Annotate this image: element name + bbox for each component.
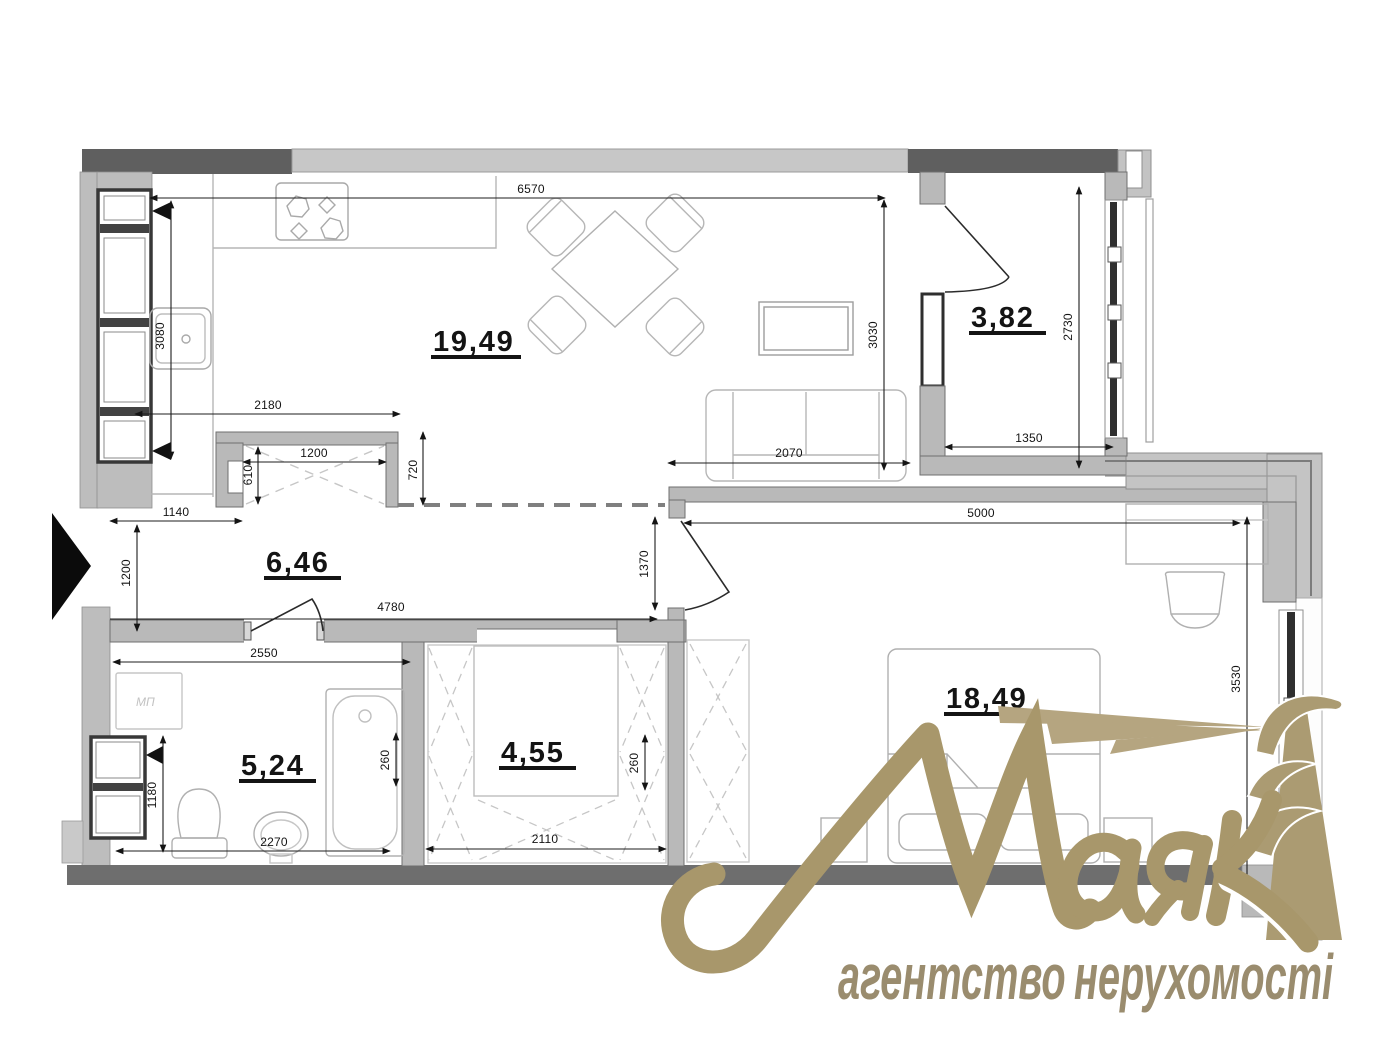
svg-text:1200: 1200: [119, 559, 133, 587]
svg-text:2730: 2730: [1061, 313, 1075, 341]
svg-text:4780: 4780: [377, 600, 405, 614]
svg-text:нерухомості: нерухомості: [1074, 943, 1334, 1014]
svg-text:1200: 1200: [300, 446, 328, 460]
svg-text:3530: 3530: [1229, 665, 1243, 693]
svg-text:610: 610: [241, 465, 255, 486]
svg-text:3080: 3080: [153, 322, 167, 350]
svg-text:6570: 6570: [517, 182, 545, 196]
svg-text:агентство: агентство: [838, 943, 1066, 1014]
svg-text:1180: 1180: [145, 782, 159, 809]
svg-text:1370: 1370: [637, 550, 651, 578]
svg-text:2110: 2110: [532, 832, 559, 846]
svg-text:3,82: 3,82: [971, 302, 1035, 334]
svg-text:4,55: 4,55: [501, 737, 565, 769]
svg-text:1140: 1140: [163, 505, 190, 519]
svg-text:5000: 5000: [967, 506, 995, 520]
svg-text:720: 720: [406, 460, 420, 481]
svg-text:19,49: 19,49: [433, 326, 515, 358]
svg-text:6,46: 6,46: [266, 547, 330, 579]
svg-text:1350: 1350: [1015, 431, 1043, 445]
svg-text:2180: 2180: [254, 398, 282, 412]
svg-text:260: 260: [627, 753, 641, 774]
svg-text:3030: 3030: [866, 321, 880, 349]
svg-text:2550: 2550: [250, 646, 278, 660]
svg-text:260: 260: [378, 750, 392, 771]
svg-text:5,24: 5,24: [241, 750, 305, 782]
svg-text:2070: 2070: [775, 446, 803, 460]
svg-text:2270: 2270: [260, 835, 288, 849]
svg-text:МП: МП: [136, 695, 155, 709]
